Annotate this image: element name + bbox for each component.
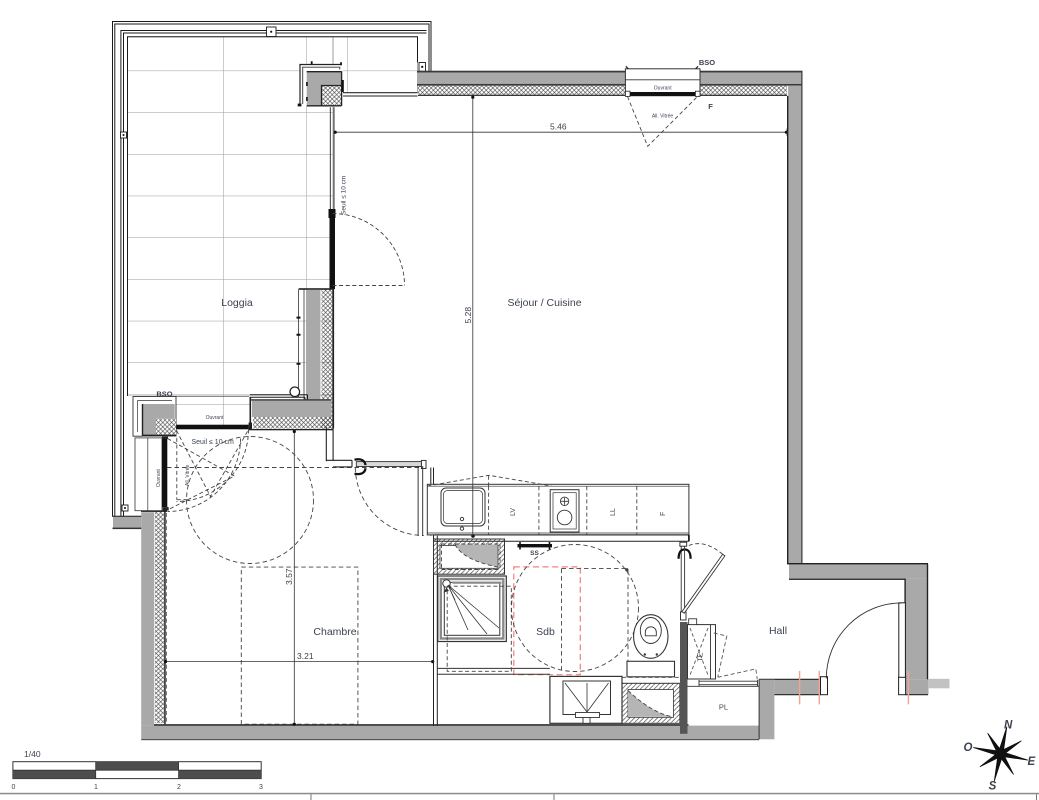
svg-text:SS: SS bbox=[530, 550, 539, 557]
svg-text:BSO: BSO bbox=[699, 58, 715, 67]
svg-text:3.57: 3.57 bbox=[284, 568, 294, 585]
svg-text:2: 2 bbox=[177, 784, 181, 791]
svg-text:Ouvrant: Ouvrant bbox=[654, 85, 672, 91]
svg-text:F: F bbox=[708, 102, 713, 111]
svg-text:3: 3 bbox=[259, 784, 263, 791]
svg-text:1/40: 1/40 bbox=[24, 749, 41, 759]
svg-text:S: S bbox=[989, 780, 997, 792]
svg-text:5.46: 5.46 bbox=[550, 122, 567, 132]
svg-text:Séjour / Cuisine: Séjour / Cuisine bbox=[507, 297, 581, 309]
svg-text:Seuil ≤ 10 cm: Seuil ≤ 10 cm bbox=[341, 176, 348, 215]
svg-text:Seuil ≤ 10 cm: Seuil ≤ 10 cm bbox=[192, 439, 235, 446]
svg-text:TE: TE bbox=[697, 652, 704, 661]
svg-text:3.21: 3.21 bbox=[297, 651, 314, 661]
svg-text:LL: LL bbox=[610, 508, 617, 516]
svg-text:O: O bbox=[964, 742, 973, 754]
svg-text:Ouvrant: Ouvrant bbox=[206, 415, 224, 421]
svg-text:Ouvrant: Ouvrant bbox=[156, 469, 162, 487]
svg-text:E: E bbox=[1027, 756, 1035, 768]
svg-text:1: 1 bbox=[94, 784, 98, 791]
svg-text:PL: PL bbox=[719, 703, 728, 712]
svg-text:Chambre: Chambre bbox=[313, 626, 356, 638]
svg-text:5.28: 5.28 bbox=[463, 307, 473, 324]
svg-text:F: F bbox=[660, 512, 667, 516]
svg-text:Sdb: Sdb bbox=[536, 626, 555, 638]
svg-text:N: N bbox=[1004, 719, 1013, 731]
svg-text:Hall: Hall bbox=[769, 625, 787, 637]
svg-text:Loggia: Loggia bbox=[221, 297, 253, 309]
svg-text:0: 0 bbox=[12, 784, 16, 791]
svg-text:LV: LV bbox=[510, 508, 517, 516]
svg-text:All. Vitrée: All. Vitrée bbox=[652, 114, 674, 120]
